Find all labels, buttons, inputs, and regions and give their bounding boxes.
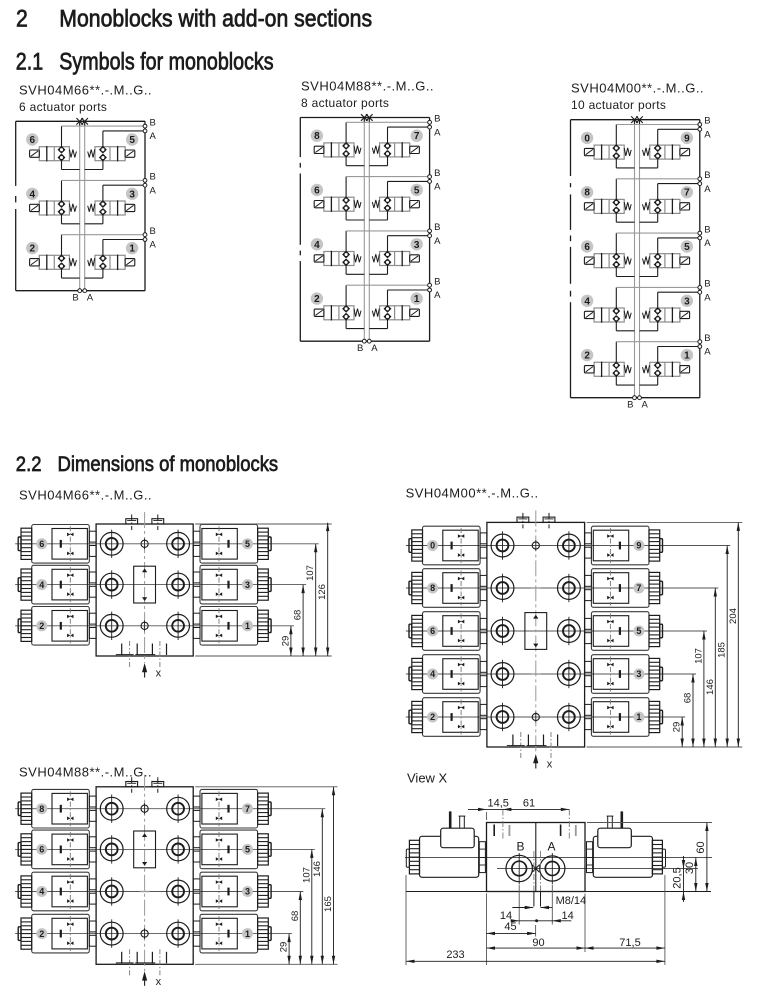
svg-text:2: 2 xyxy=(39,929,44,939)
svg-text:B: B xyxy=(434,276,440,287)
svg-text:3: 3 xyxy=(636,669,641,679)
svg-text:B: B xyxy=(150,172,156,183)
svg-text:x: x xyxy=(156,976,162,988)
svg-text:7: 7 xyxy=(684,188,690,199)
svg-text:204: 204 xyxy=(728,608,739,624)
svg-text:3: 3 xyxy=(129,189,135,200)
svg-text:185: 185 xyxy=(717,642,728,658)
svg-text:45: 45 xyxy=(504,921,516,933)
svg-text:2.1: 2.1 xyxy=(16,48,43,75)
svg-text:A: A xyxy=(434,182,441,193)
svg-text:5: 5 xyxy=(245,845,250,855)
svg-text:146: 146 xyxy=(705,679,716,695)
svg-text:8 actuator ports: 8 actuator ports xyxy=(301,96,389,110)
svg-text:Dimensions of monoblocks: Dimensions of monoblocks xyxy=(58,453,279,476)
svg-text:68: 68 xyxy=(293,610,304,621)
svg-text:6: 6 xyxy=(314,186,320,197)
svg-text:8: 8 xyxy=(584,188,590,199)
svg-text:B: B xyxy=(627,400,633,411)
svg-text:SVH04M88**.-.M..G..: SVH04M88**.-.M..G.. xyxy=(301,79,434,94)
svg-text:8: 8 xyxy=(430,583,435,593)
svg-text:x: x xyxy=(547,759,553,771)
svg-text:60: 60 xyxy=(695,841,707,853)
svg-text:4: 4 xyxy=(39,580,44,590)
svg-text:x: x xyxy=(156,668,162,680)
svg-text:107: 107 xyxy=(693,648,704,664)
svg-text:A: A xyxy=(434,290,441,301)
svg-text:0: 0 xyxy=(430,541,435,551)
svg-text:3: 3 xyxy=(245,580,250,590)
svg-text:B: B xyxy=(704,224,710,235)
svg-text:4: 4 xyxy=(39,887,44,897)
svg-text:B: B xyxy=(434,222,440,233)
svg-text:B: B xyxy=(704,279,710,290)
svg-text:SVH04M66**.-.M..G..: SVH04M66**.-.M..G.. xyxy=(19,488,152,503)
svg-text:2.2: 2.2 xyxy=(16,453,42,476)
svg-text:2: 2 xyxy=(314,294,320,305)
svg-text:6: 6 xyxy=(30,135,36,146)
svg-text:4: 4 xyxy=(30,189,36,200)
svg-text:1: 1 xyxy=(414,294,420,305)
svg-text:B: B xyxy=(150,117,156,128)
svg-text:90: 90 xyxy=(532,937,544,949)
svg-text:6: 6 xyxy=(39,845,44,855)
svg-text:7: 7 xyxy=(636,583,641,593)
svg-text:9: 9 xyxy=(636,541,641,551)
svg-text:5: 5 xyxy=(245,539,250,549)
svg-text:A: A xyxy=(150,240,157,251)
svg-text:5: 5 xyxy=(129,135,135,146)
svg-text:SVH04M00**.-.M..G..: SVH04M00**.-.M..G.. xyxy=(571,81,704,96)
svg-text:4: 4 xyxy=(430,669,435,679)
svg-text:68: 68 xyxy=(683,693,694,704)
svg-text:14: 14 xyxy=(561,910,573,922)
svg-text:29: 29 xyxy=(280,636,291,647)
svg-text:1: 1 xyxy=(245,929,250,939)
svg-text:165: 165 xyxy=(323,896,334,912)
svg-text:A: A xyxy=(704,292,711,303)
svg-text:B: B xyxy=(434,114,440,125)
svg-text:Monoblocks with add-on section: Monoblocks with add-on sections xyxy=(59,4,372,32)
svg-text:7: 7 xyxy=(245,804,250,814)
svg-text:A: A xyxy=(547,840,555,854)
svg-text:B: B xyxy=(357,343,363,354)
svg-text:M8/14: M8/14 xyxy=(556,895,587,907)
svg-text:B: B xyxy=(704,170,710,181)
svg-text:2: 2 xyxy=(584,351,590,362)
svg-text:SVH04M00**.-.M..G..: SVH04M00**.-.M..G.. xyxy=(406,486,539,501)
svg-text:B: B xyxy=(704,116,710,127)
svg-text:SVH04M88**.-.M..G..: SVH04M88**.-.M..G.. xyxy=(19,765,152,780)
svg-text:14,5: 14,5 xyxy=(487,798,508,810)
svg-text:6: 6 xyxy=(39,539,44,549)
svg-text:B: B xyxy=(72,293,78,304)
svg-text:1: 1 xyxy=(684,351,690,362)
svg-text:4: 4 xyxy=(584,296,590,307)
svg-text:1: 1 xyxy=(636,712,641,722)
svg-text:A: A xyxy=(150,185,157,196)
svg-text:7: 7 xyxy=(414,131,420,142)
svg-text:A: A xyxy=(642,400,649,411)
svg-text:146: 146 xyxy=(312,861,323,877)
svg-text:3: 3 xyxy=(414,240,420,251)
svg-text:5: 5 xyxy=(684,242,690,253)
svg-text:233: 233 xyxy=(446,949,464,961)
svg-text:B: B xyxy=(150,226,156,237)
svg-text:A: A xyxy=(704,130,711,141)
svg-text:107: 107 xyxy=(301,867,312,883)
svg-text:5: 5 xyxy=(636,626,641,636)
svg-text:B: B xyxy=(434,168,440,179)
svg-text:2: 2 xyxy=(430,712,435,722)
svg-text:61: 61 xyxy=(523,798,535,810)
svg-text:A: A xyxy=(150,131,157,142)
svg-text:107: 107 xyxy=(305,565,316,581)
svg-text:A: A xyxy=(434,236,441,247)
svg-text:3: 3 xyxy=(684,296,690,307)
svg-text:Symbols for monoblocks: Symbols for monoblocks xyxy=(59,48,273,75)
svg-text:0: 0 xyxy=(584,133,590,144)
svg-text:5: 5 xyxy=(414,186,420,197)
svg-text:1: 1 xyxy=(129,244,135,255)
svg-text:2: 2 xyxy=(39,621,44,631)
svg-text:B: B xyxy=(704,333,710,344)
svg-text:29: 29 xyxy=(672,722,683,733)
svg-text:4: 4 xyxy=(314,240,320,251)
svg-text:6: 6 xyxy=(430,626,435,636)
svg-text:View X: View X xyxy=(407,771,448,786)
svg-text:A: A xyxy=(704,184,711,195)
svg-text:A: A xyxy=(704,238,711,249)
svg-text:6: 6 xyxy=(584,242,590,253)
svg-text:2: 2 xyxy=(30,244,36,255)
svg-text:68: 68 xyxy=(290,911,301,922)
svg-text:71,5: 71,5 xyxy=(619,937,640,949)
svg-text:9: 9 xyxy=(684,133,690,144)
svg-text:A: A xyxy=(434,127,441,138)
svg-text:SVH04M66**.-.M..G..: SVH04M66**.-.M..G.. xyxy=(19,82,152,97)
svg-text:29: 29 xyxy=(279,942,290,953)
svg-text:8: 8 xyxy=(39,804,44,814)
svg-text:B: B xyxy=(516,840,524,854)
svg-text:A: A xyxy=(371,343,378,354)
svg-text:30: 30 xyxy=(684,862,696,874)
svg-text:3: 3 xyxy=(245,887,250,897)
svg-text:2: 2 xyxy=(16,4,28,32)
svg-text:1: 1 xyxy=(245,621,250,631)
svg-text:8: 8 xyxy=(314,131,320,142)
svg-text:A: A xyxy=(87,293,94,304)
svg-text:6 actuator ports: 6 actuator ports xyxy=(19,100,107,114)
svg-text:126: 126 xyxy=(317,584,328,600)
svg-text:A: A xyxy=(704,347,711,358)
svg-text:10 actuator ports: 10 actuator ports xyxy=(571,98,666,112)
svg-text:20,5: 20,5 xyxy=(672,867,684,888)
